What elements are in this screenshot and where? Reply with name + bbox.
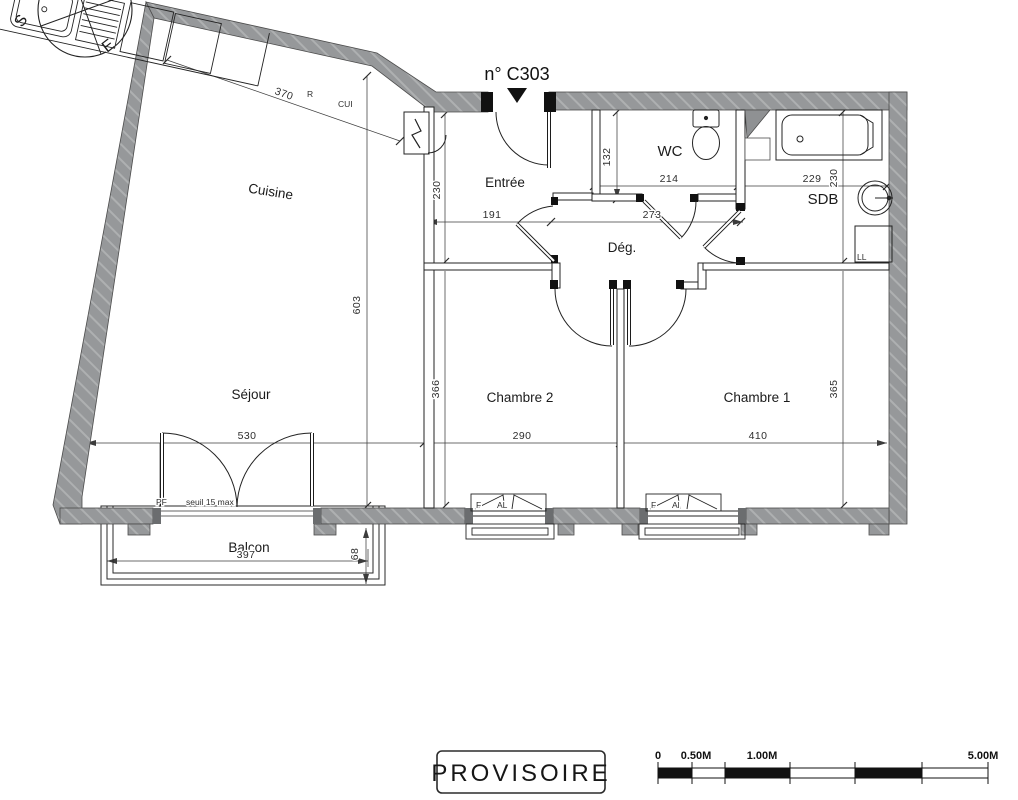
window2-type-label: F [651, 500, 656, 510]
dim-sdb-width: 229 [803, 173, 822, 185]
room-label-wc: WC [658, 143, 683, 160]
dim-kitchen-wall: 370 [273, 85, 295, 103]
room-label-chambre1: Chambre 1 [724, 390, 791, 405]
bathtub [776, 110, 882, 160]
toilet [693, 110, 720, 160]
dim-sejour-width: 530 [238, 430, 257, 442]
dim-chambre2-width: 290 [513, 430, 532, 442]
scale-label-100m: 1.00M [747, 750, 778, 762]
kitchen-column-label: CUI [338, 99, 353, 109]
scale-label-050m: 0.50M [681, 750, 712, 762]
unit-number-label: n° C303 [484, 64, 549, 84]
provisoire-stamp-label: PROVISOIRE [431, 760, 610, 787]
entrance-marker-icon [507, 88, 527, 103]
room-label-entree: Entrée [485, 175, 525, 190]
threshold-note: seuil 15 max [186, 497, 234, 507]
provisoire-stamp: PROVISOIRE [431, 751, 610, 793]
scale-label-0: 0 [655, 750, 661, 762]
interior-walls [424, 107, 889, 508]
floor-plan-drawing: S E [0, 0, 1018, 800]
dim-degagement-width: 273 [643, 209, 662, 221]
dim-balcon-depth: 68 [349, 548, 361, 560]
scale-label-500m: 5.00M [968, 750, 999, 762]
fridge-label: R [307, 89, 313, 99]
room-label-cuisine: Cuisine [247, 181, 294, 203]
dim-sejour-height: 603 [351, 296, 363, 315]
dim-sdb-height: 230 [828, 169, 840, 188]
dim-entree-width: 191 [483, 209, 502, 221]
duct-shaft [745, 110, 770, 160]
window1-type-label: F [476, 500, 481, 510]
door-jambs [481, 92, 745, 289]
floor-plan-page: S E [0, 0, 1018, 800]
unit-header: n° C303 [484, 64, 549, 103]
dim-chambre2-height: 366 [430, 380, 442, 399]
dim-balcon-width: 397 [237, 549, 256, 561]
window1-material-label: AL [497, 500, 508, 510]
window2-material-label: Al [672, 500, 680, 510]
room-labels: Cuisine Séjour Entrée WC SDB Dég. Chambr… [228, 143, 838, 555]
scale-bar: 0 0.50M 1.00M 5.00M [655, 750, 998, 784]
room-label-chambre2: Chambre 2 [487, 390, 554, 405]
french-door-label: PF [156, 497, 167, 507]
room-label-degagement: Dég. [608, 240, 637, 255]
dim-chambre1-height: 365 [828, 380, 840, 399]
room-label-sdb: SDB [808, 191, 839, 208]
dim-entree-height: 230 [431, 181, 443, 200]
room-label-sejour: Séjour [231, 387, 271, 402]
doors [161, 112, 740, 516]
dim-chambre1-width: 410 [749, 430, 768, 442]
dim-wc-height: 132 [601, 148, 613, 167]
washing-machine-label: LL [857, 252, 867, 262]
electrical-panel [404, 112, 446, 154]
dim-wc-width: 214 [660, 173, 679, 185]
